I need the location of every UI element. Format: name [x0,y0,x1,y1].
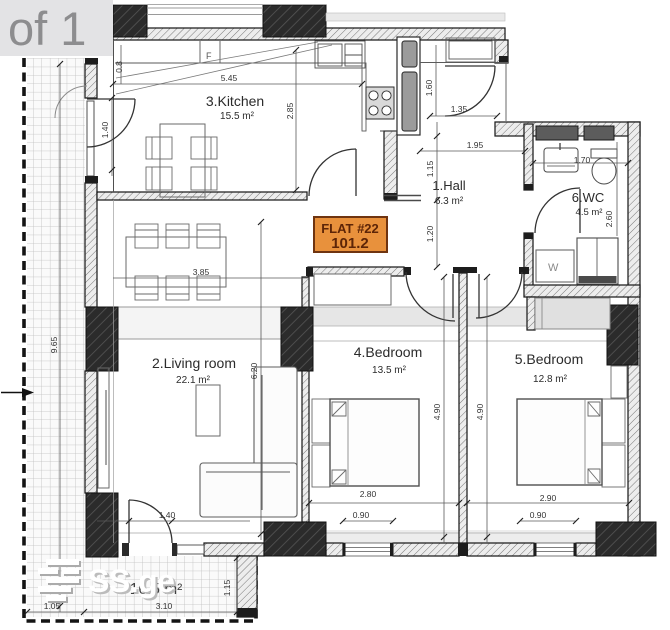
svg-text:0.90: 0.90 [353,510,370,520]
svg-text:101.2: 101.2 [331,235,369,252]
svg-text:6.WC: 6.WC [572,190,605,205]
svg-text:W: W [548,262,559,274]
svg-text:3.85: 3.85 [193,267,210,277]
svg-text:5.45: 5.45 [221,73,238,83]
svg-text:13.5 m²: 13.5 m² [372,365,407,376]
svg-text:2.Living room: 2.Living room [152,355,236,371]
svg-text:1.40: 1.40 [100,121,110,138]
svg-text:1.35: 1.35 [451,104,468,114]
svg-text:1.70: 1.70 [574,155,591,165]
svg-text:15.5 m²: 15.5 m² [220,111,255,122]
svg-text:2.85: 2.85 [285,102,295,119]
svg-text:5.Bedroom: 5.Bedroom [515,351,583,367]
svg-text:1.15: 1.15 [222,579,232,596]
svg-text:1.40: 1.40 [159,510,176,520]
svg-text:4.5 m²: 4.5 m² [576,207,603,218]
svg-text:1.60: 1.60 [424,79,434,96]
svg-text:of 1: of 1 [8,2,86,55]
svg-text:FLAT #22: FLAT #22 [321,221,379,236]
svg-text:2.60: 2.60 [604,210,614,227]
svg-text:0.90: 0.90 [530,510,547,520]
svg-text:4.Bedroom: 4.Bedroom [354,344,422,360]
svg-text:2.90: 2.90 [540,493,557,503]
svg-text:3.10: 3.10 [156,601,173,611]
svg-text:1.95: 1.95 [467,140,484,150]
svg-text:9.65: 9.65 [49,336,59,353]
svg-text:3.Kitchen: 3.Kitchen [206,93,264,109]
svg-text:4.90: 4.90 [475,403,485,420]
svg-text:6.20: 6.20 [249,362,259,379]
svg-text:0.8: 0.8 [114,61,124,73]
svg-text:12.8 m²: 12.8 m² [533,374,568,385]
svg-text:F: F [206,51,212,61]
svg-text:1.15: 1.15 [425,160,435,177]
svg-text:22.1 m²: 22.1 m² [176,375,211,386]
svg-text:SS.ge: SS.ge [88,563,174,599]
svg-text:2.80: 2.80 [360,489,377,499]
svg-text:4.90: 4.90 [432,403,442,420]
svg-text:1.20: 1.20 [425,225,435,242]
